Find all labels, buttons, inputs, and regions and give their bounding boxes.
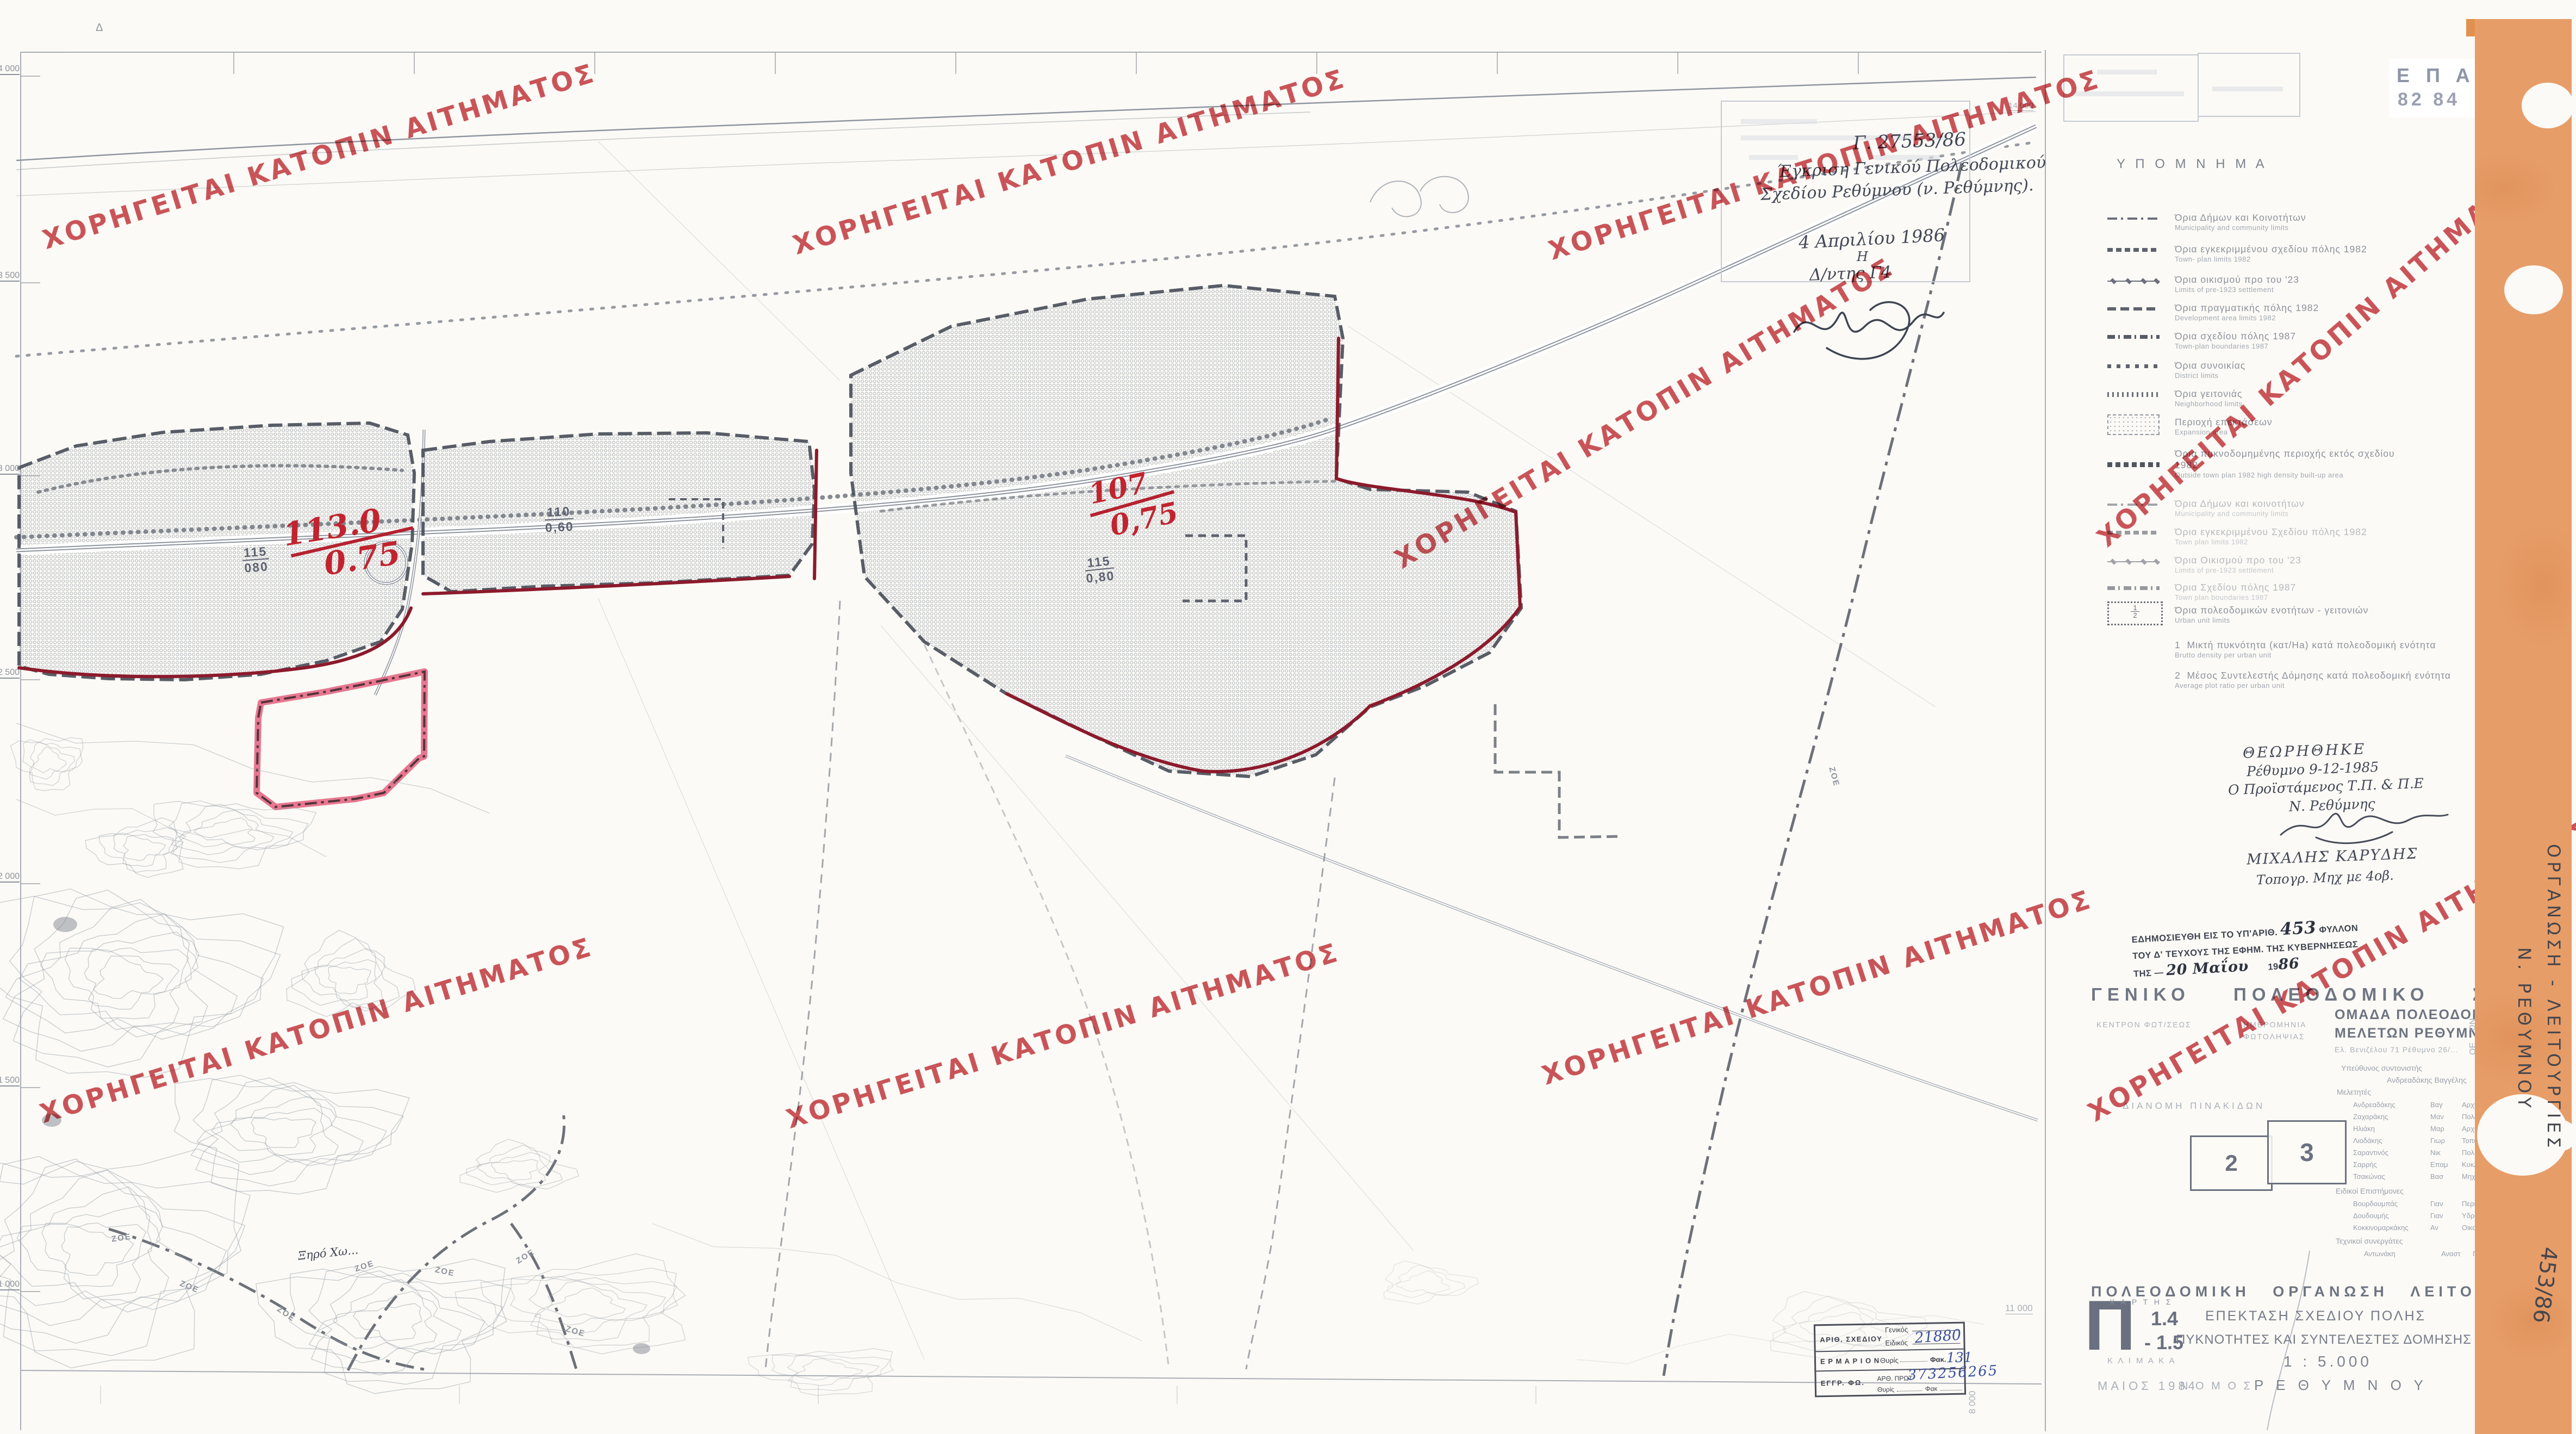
stamp-field-label: Γενικός bbox=[1885, 1325, 1908, 1334]
grid-label-left: 14 000 bbox=[0, 64, 20, 75]
epa-years-label: 82 84 bbox=[2398, 89, 2460, 110]
legend-note-plot-ratio: 2 Μέσος Συντελεστής Δόμησης κατά πολεοδο… bbox=[2107, 670, 2477, 690]
stamp-field-label: ΕΓΓΡ. ΦΩ. bbox=[1821, 1379, 1865, 1387]
tick-line-symbol bbox=[2107, 392, 2160, 397]
legend-item-actual-town: Όρια πραγματικής πόλης 1982Development a… bbox=[2107, 302, 2477, 322]
grid-label-left: 12 000 bbox=[0, 872, 20, 883]
folder-number-value: 131 bbox=[1946, 1349, 1973, 1365]
team-member-row: ΗλιάκηΜαρΑρχιτέκ bbox=[2353, 1125, 2484, 1133]
photo-center-label: ΚΕΝΤΡΟΝ ΦΩΤ/ΣΕΩΣ bbox=[2096, 1020, 2192, 1029]
index-map-sheet-3: 3 bbox=[2267, 1120, 2347, 1184]
dense-square-line-symbol bbox=[2107, 462, 2160, 467]
endorsement-line4: Ν. Ρεθύμνης bbox=[2289, 796, 2376, 815]
specialist-row: ΚοκκινομαρκάκηςΑνΟικονομολ bbox=[2353, 1224, 2484, 1232]
punch-hole bbox=[2504, 265, 2563, 314]
team-member-row: ΣαρρήςΕπαμΚυκλοφ bbox=[2353, 1160, 2484, 1169]
heavy-dash-line-symbol bbox=[2107, 307, 2160, 311]
grid-label-left: 13 000 bbox=[0, 464, 20, 475]
legend-item-pre-1923-settlement-2: Όρια Οικισμού προ του '23Limits of pre-1… bbox=[2107, 555, 2477, 575]
legend-item-town-plan-1987-2: Όρια Σχεδίου πόλης 1987Town plan boundar… bbox=[2107, 582, 2477, 602]
subtitle-densities: ΠΥΚΝΟΤΗΤΕΣ ΚΑΙ ΣΥΝΤΕΛΕΣΤΕΣ ΔΟΜΗΣΗΣ bbox=[2176, 1332, 2472, 1348]
strip-title-handwritten: ΟΡΓΑΝΩΣΗ - ΛΕΙΤΟΥΡΓΙΕΣ bbox=[2543, 844, 2564, 1152]
stamp-field-label: ΑΡΙΘ. ΣΧΕΔΙΟΥ bbox=[1820, 1334, 1882, 1344]
scale-value: 1 : 5.000 bbox=[2283, 1353, 2372, 1370]
sheet-distribution-label: ΔΙΑΝΟΜΗ ΠΙΝΑΚΙΔΩΝ bbox=[2123, 1101, 2265, 1112]
team-member-row: ΖαχαράκηςΜανΠολεοδ bbox=[2353, 1113, 2484, 1121]
grid-label-bottom-right: 11 000 bbox=[2005, 1303, 2033, 1314]
square-dash-line-symbol bbox=[2107, 364, 2160, 368]
legend-item-town-plan-1982-2: Όρια εγκεκριμμένου Σχεδίου πόλης 1982Tow… bbox=[2107, 526, 2477, 547]
grid-label-left: 11 500 bbox=[0, 1076, 20, 1087]
corner-triangle-mark: Δ bbox=[96, 22, 103, 34]
stamp-field-label: Ε Ρ Μ Α Ρ Ι Ο Ν bbox=[1820, 1356, 1880, 1365]
grid-label-bottom-right-vertical: 8 000 bbox=[1967, 1390, 1978, 1414]
density-label: 1100,60 bbox=[544, 504, 575, 535]
grid-label-left: 12 500 bbox=[0, 668, 20, 679]
dashdot-line-symbol bbox=[2107, 218, 2160, 220]
registry-box bbox=[2198, 53, 2300, 117]
legend-item-town-plan-1987: Όρια σχεδίου πόλης 1987Town-plan boundar… bbox=[2107, 331, 2477, 351]
assistants-label: Τεχνικοί συνεργάτες bbox=[2336, 1237, 2403, 1245]
dotted-area-symbol bbox=[2107, 414, 2160, 435]
prefecture-value: Ρ Ε Θ Υ Μ Ν Ο Υ bbox=[2254, 1377, 2428, 1394]
scale-label: Κ Λ Ι Μ Α Κ Α bbox=[2107, 1356, 2176, 1365]
specialists-label: Ειδικοί Επιστήμονες bbox=[2336, 1187, 2404, 1195]
prefecture-label: Ν Ο Μ Ο Σ bbox=[2180, 1380, 2253, 1393]
coordinator-label: Υπεύθυνος συντονιστής bbox=[2341, 1064, 2422, 1072]
strip-prefecture-handwritten: Ν. ΡΕΘΥΜΝΟΥ bbox=[2514, 947, 2535, 1112]
legend-item-urban-unit-limits: 12 Όρια πολεοδομικών ενοτήτων - γειτονιώ… bbox=[2107, 605, 2477, 625]
team-member-row: ΑνδρεαδάκηςΒαγΑρχιτέκ bbox=[2353, 1101, 2484, 1109]
gazette-issue-number: 453 bbox=[2280, 918, 2317, 939]
dash-dot-line-symbol bbox=[2107, 586, 2160, 590]
block-dash-line-symbol bbox=[2107, 248, 2160, 252]
chart-label: Χ Α Ρ Τ Η Σ bbox=[2110, 1298, 2173, 1306]
team-member-row: ΤσακώναςΒασΜηχανολ bbox=[2353, 1172, 2484, 1181]
stamp-field-label: Φακ bbox=[1925, 1385, 1938, 1392]
drawing-number-stamp: ΑΡΙΘ. ΣΧΕΔΙΟΥ Γενικός Ειδικός 21880 Ε Ρ … bbox=[1814, 1322, 1966, 1398]
diamond-line-symbol bbox=[2107, 281, 2160, 282]
stamp-field-label: Ειδικός bbox=[1885, 1338, 1908, 1347]
punch-hole bbox=[2522, 83, 2574, 128]
stamp-field-label: Φακ. bbox=[1930, 1355, 1946, 1364]
orange-archive-strip bbox=[2475, 19, 2572, 1434]
legend-note-density: 1 Μικτή πυκνότητα (κατ/Ha) κατά πολεοδομ… bbox=[2107, 640, 2477, 660]
members-label: Μελετητές bbox=[2337, 1088, 2371, 1096]
epa-program-label: Ε Π Α bbox=[2397, 64, 2475, 87]
specialist-row: ΒουρδουμπάςΓιανΠεριβ Μηχ bbox=[2353, 1200, 2484, 1208]
gazette-date-handwritten: 20 Μαΐου bbox=[2166, 958, 2249, 979]
study-group-address: Ελ. Βενιζέλου 71 Ρέθυμνο 26/... bbox=[2335, 1045, 2459, 1054]
legend-item-municipality-limits: Όρια Δήμων και ΚοινοτήτωνMunicipality an… bbox=[2107, 212, 2477, 232]
team-member-row: ΣαραντινόςΝικΠολ Μηχ bbox=[2353, 1149, 2484, 1157]
sheet-number-1: 1.4 bbox=[2151, 1307, 2178, 1330]
diamond-line-symbol bbox=[2107, 561, 2160, 562]
grid-label-left: 11 000 bbox=[0, 1280, 20, 1290]
drawing-number-value: 21880 bbox=[1914, 1326, 1962, 1346]
legend-item-expansion-area: Περιοχή επεκτάσεωνExpansion area bbox=[2107, 417, 2477, 437]
scanned-map-sheet: Δ 14 000 13 500 13 000 12 500 12 000 11 … bbox=[0, 0, 2576, 1434]
ladder-box-symbol: 12 bbox=[2107, 601, 2163, 625]
dash-dot-line-symbol bbox=[2107, 335, 2160, 339]
stamp-field-label: Θυρίς bbox=[1877, 1386, 1894, 1394]
team-member-row: ΛιοδάκηςΓιωρΤοπογραφ bbox=[2353, 1137, 2484, 1145]
grid-label-left: 13 500 bbox=[0, 271, 20, 282]
subtitle-extension: ΕΠΕΚΤΑΣΗ ΣΧΕΔΙΟΥ ΠΟΛΗΣ bbox=[2205, 1308, 2426, 1324]
specialist-row: ΔουδουμήςΓιανΥδραυλ Μηχ bbox=[2353, 1212, 2484, 1220]
stamp-field-label: Θυρίς bbox=[1880, 1356, 1899, 1365]
legend-title: Υ Π Ο Μ Ν Η Μ Α bbox=[2117, 157, 2268, 172]
index-map-sheet-2: 2 bbox=[2190, 1135, 2273, 1191]
density-label: 115080 bbox=[241, 544, 270, 575]
coordinator-name: Ανδρεαδάκης Βαγγέλης bbox=[2387, 1076, 2467, 1084]
density-label: 1150,80 bbox=[1084, 553, 1115, 585]
